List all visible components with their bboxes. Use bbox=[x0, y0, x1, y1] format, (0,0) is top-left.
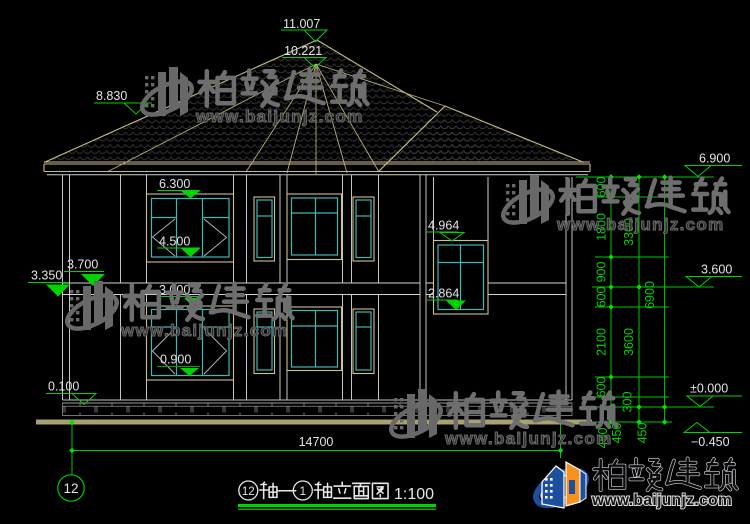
svg-text:6.300: 6.300 bbox=[159, 177, 190, 191]
svg-text:300: 300 bbox=[621, 392, 635, 413]
svg-text:3600: 3600 bbox=[622, 328, 636, 356]
svg-text:900: 900 bbox=[595, 262, 609, 283]
svg-text:3.350: 3.350 bbox=[31, 269, 62, 283]
svg-text:4.964: 4.964 bbox=[428, 219, 459, 233]
svg-text:8.830: 8.830 bbox=[96, 89, 127, 103]
svg-text:0.100: 0.100 bbox=[48, 380, 79, 394]
svg-text:www.baijunjz.com: www.baijunjz.com bbox=[591, 492, 732, 509]
svg-text:600: 600 bbox=[595, 287, 609, 308]
svg-text:2.864: 2.864 bbox=[428, 287, 459, 301]
svg-text:12: 12 bbox=[242, 486, 255, 498]
svg-text:2100: 2100 bbox=[595, 328, 609, 356]
svg-text:−0.450: −0.450 bbox=[691, 435, 730, 449]
svg-text:3.700: 3.700 bbox=[67, 258, 98, 272]
svg-text:10.221: 10.221 bbox=[284, 44, 322, 58]
svg-text:0.900: 0.900 bbox=[160, 353, 191, 367]
svg-text:±0.000: ±0.000 bbox=[690, 382, 728, 396]
svg-text:6900: 6900 bbox=[643, 281, 657, 309]
svg-text:3.600: 3.600 bbox=[701, 263, 732, 277]
svg-text:1: 1 bbox=[300, 486, 306, 498]
svg-text:14700: 14700 bbox=[299, 435, 334, 449]
svg-text:450: 450 bbox=[636, 423, 650, 444]
svg-text:4.500: 4.500 bbox=[159, 235, 190, 249]
svg-text:1:100: 1:100 bbox=[394, 486, 434, 503]
svg-text:6.900: 6.900 bbox=[699, 152, 730, 166]
svg-text:12: 12 bbox=[63, 481, 78, 496]
svg-text:11.007: 11.007 bbox=[283, 17, 320, 31]
